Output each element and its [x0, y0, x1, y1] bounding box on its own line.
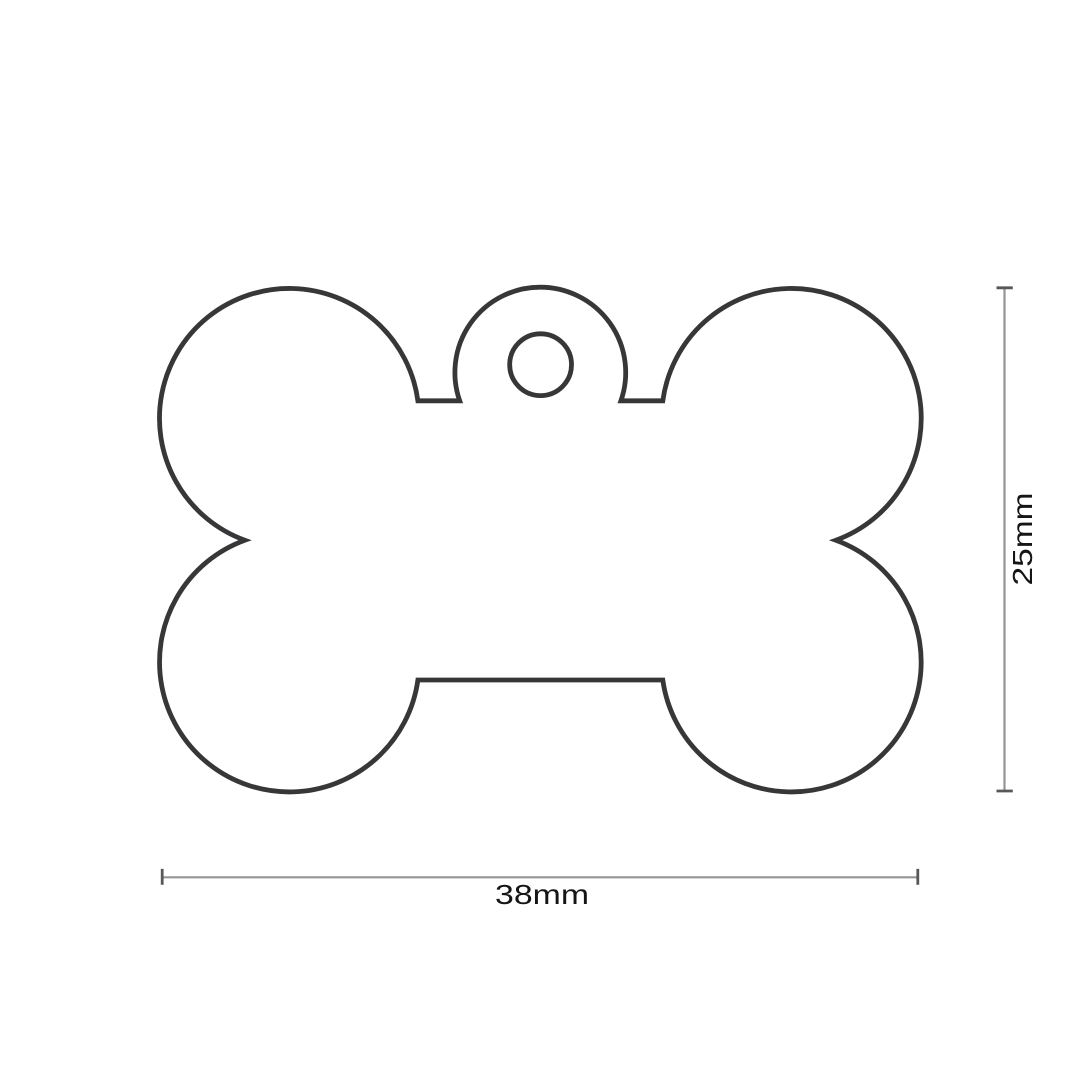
svg-text:38mm: 38mm — [495, 879, 589, 910]
svg-text:25mm: 25mm — [1007, 493, 1038, 586]
